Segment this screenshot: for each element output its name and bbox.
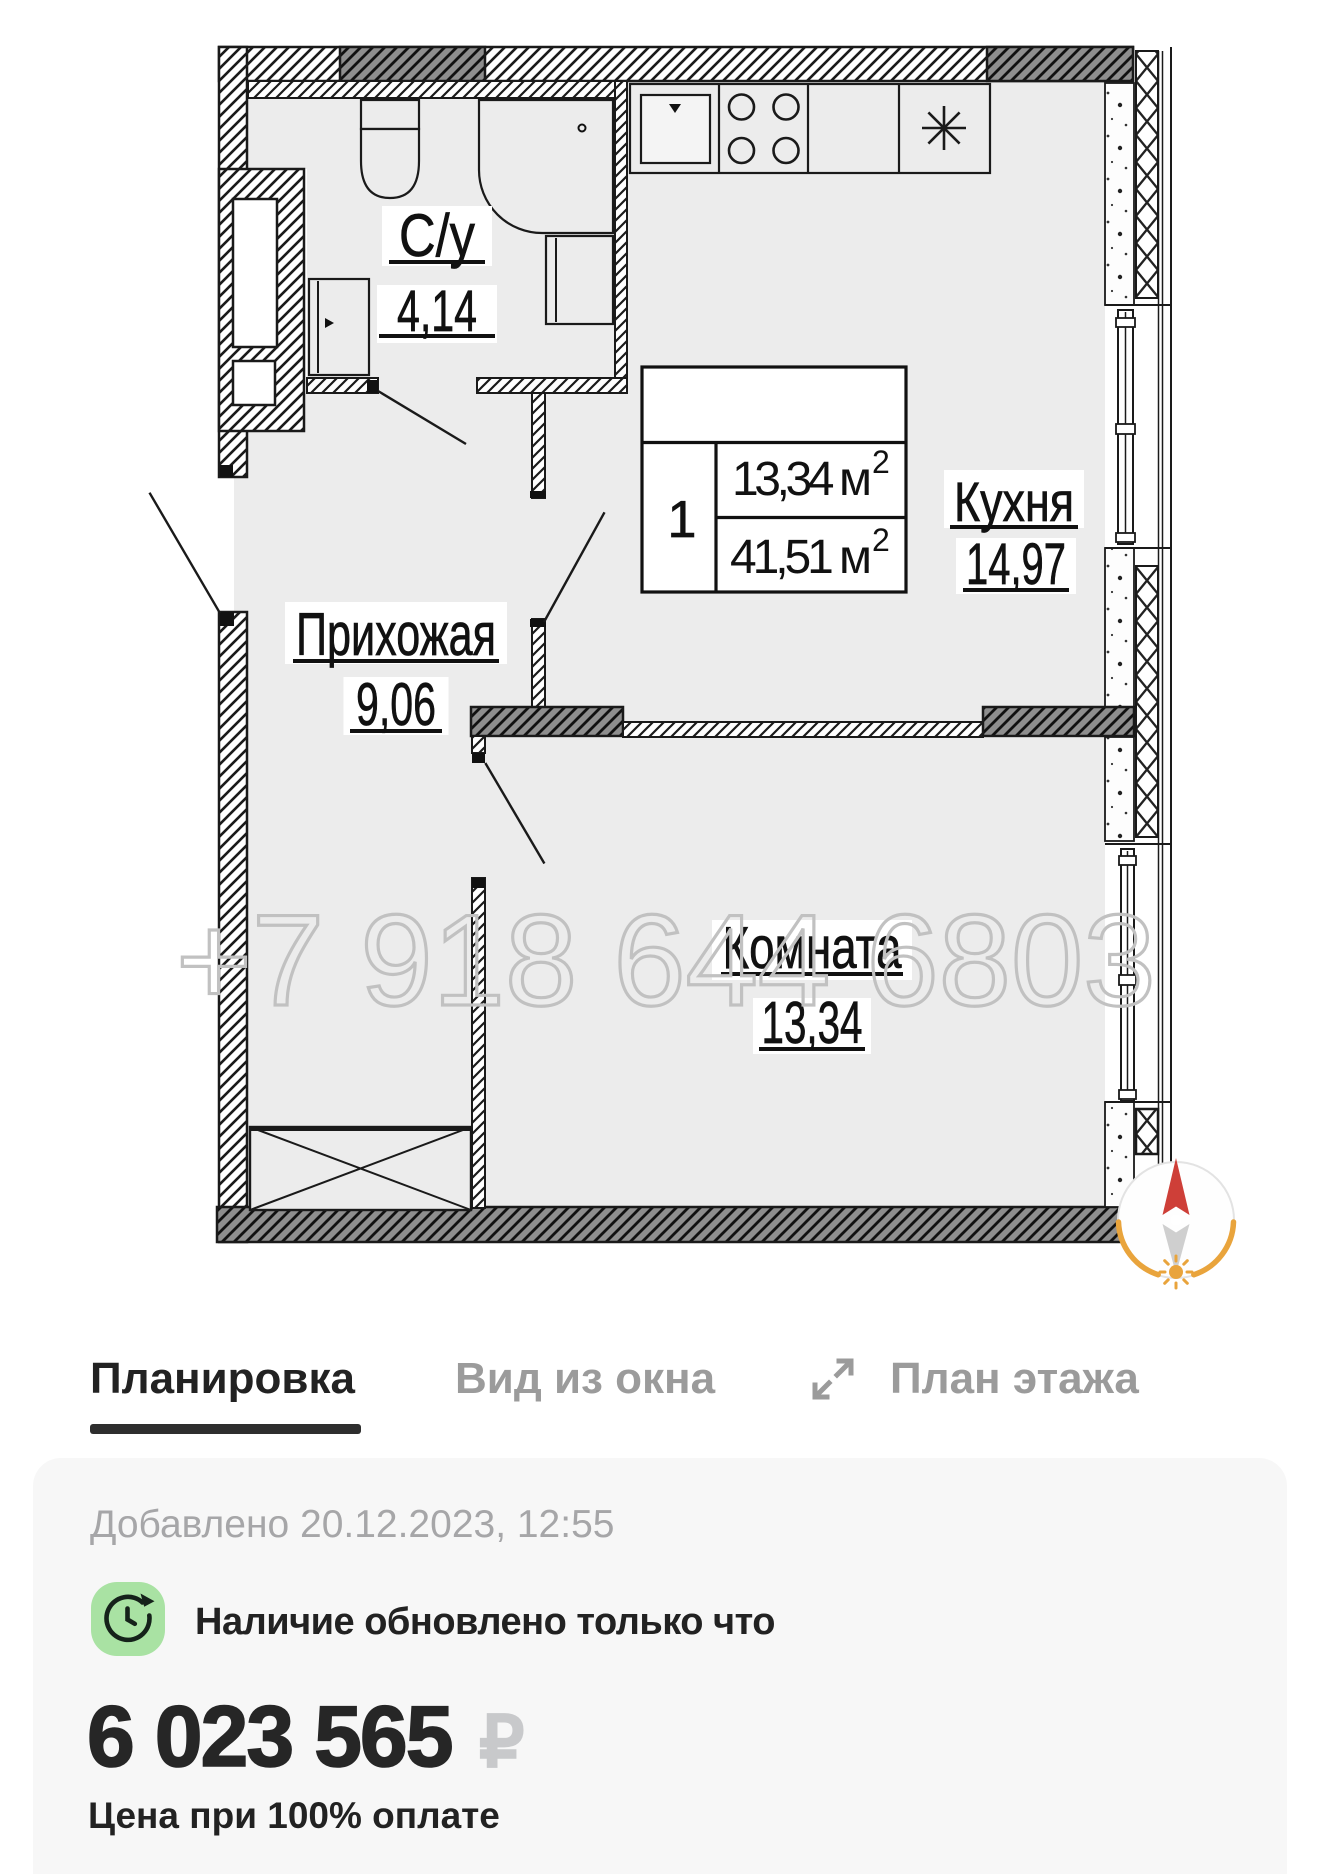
svg-text:С/у: С/у (399, 202, 475, 269)
svg-text:9,06: 9,06 (356, 671, 436, 738)
svg-text:13,34 м: 13,34 м (732, 453, 872, 506)
svg-text:2: 2 (872, 444, 890, 480)
svg-text:1: 1 (668, 491, 697, 549)
svg-text:+7 918 644 6803: +7 918 644 6803 (176, 887, 1156, 1033)
svg-text:14,97: 14,97 (966, 532, 1066, 597)
svg-text:Прихожая: Прихожая (296, 601, 496, 668)
svg-text:Кухня: Кухня (954, 470, 1074, 533)
svg-text:41,51 м: 41,51 м (730, 531, 872, 584)
svg-text:2: 2 (872, 522, 890, 558)
